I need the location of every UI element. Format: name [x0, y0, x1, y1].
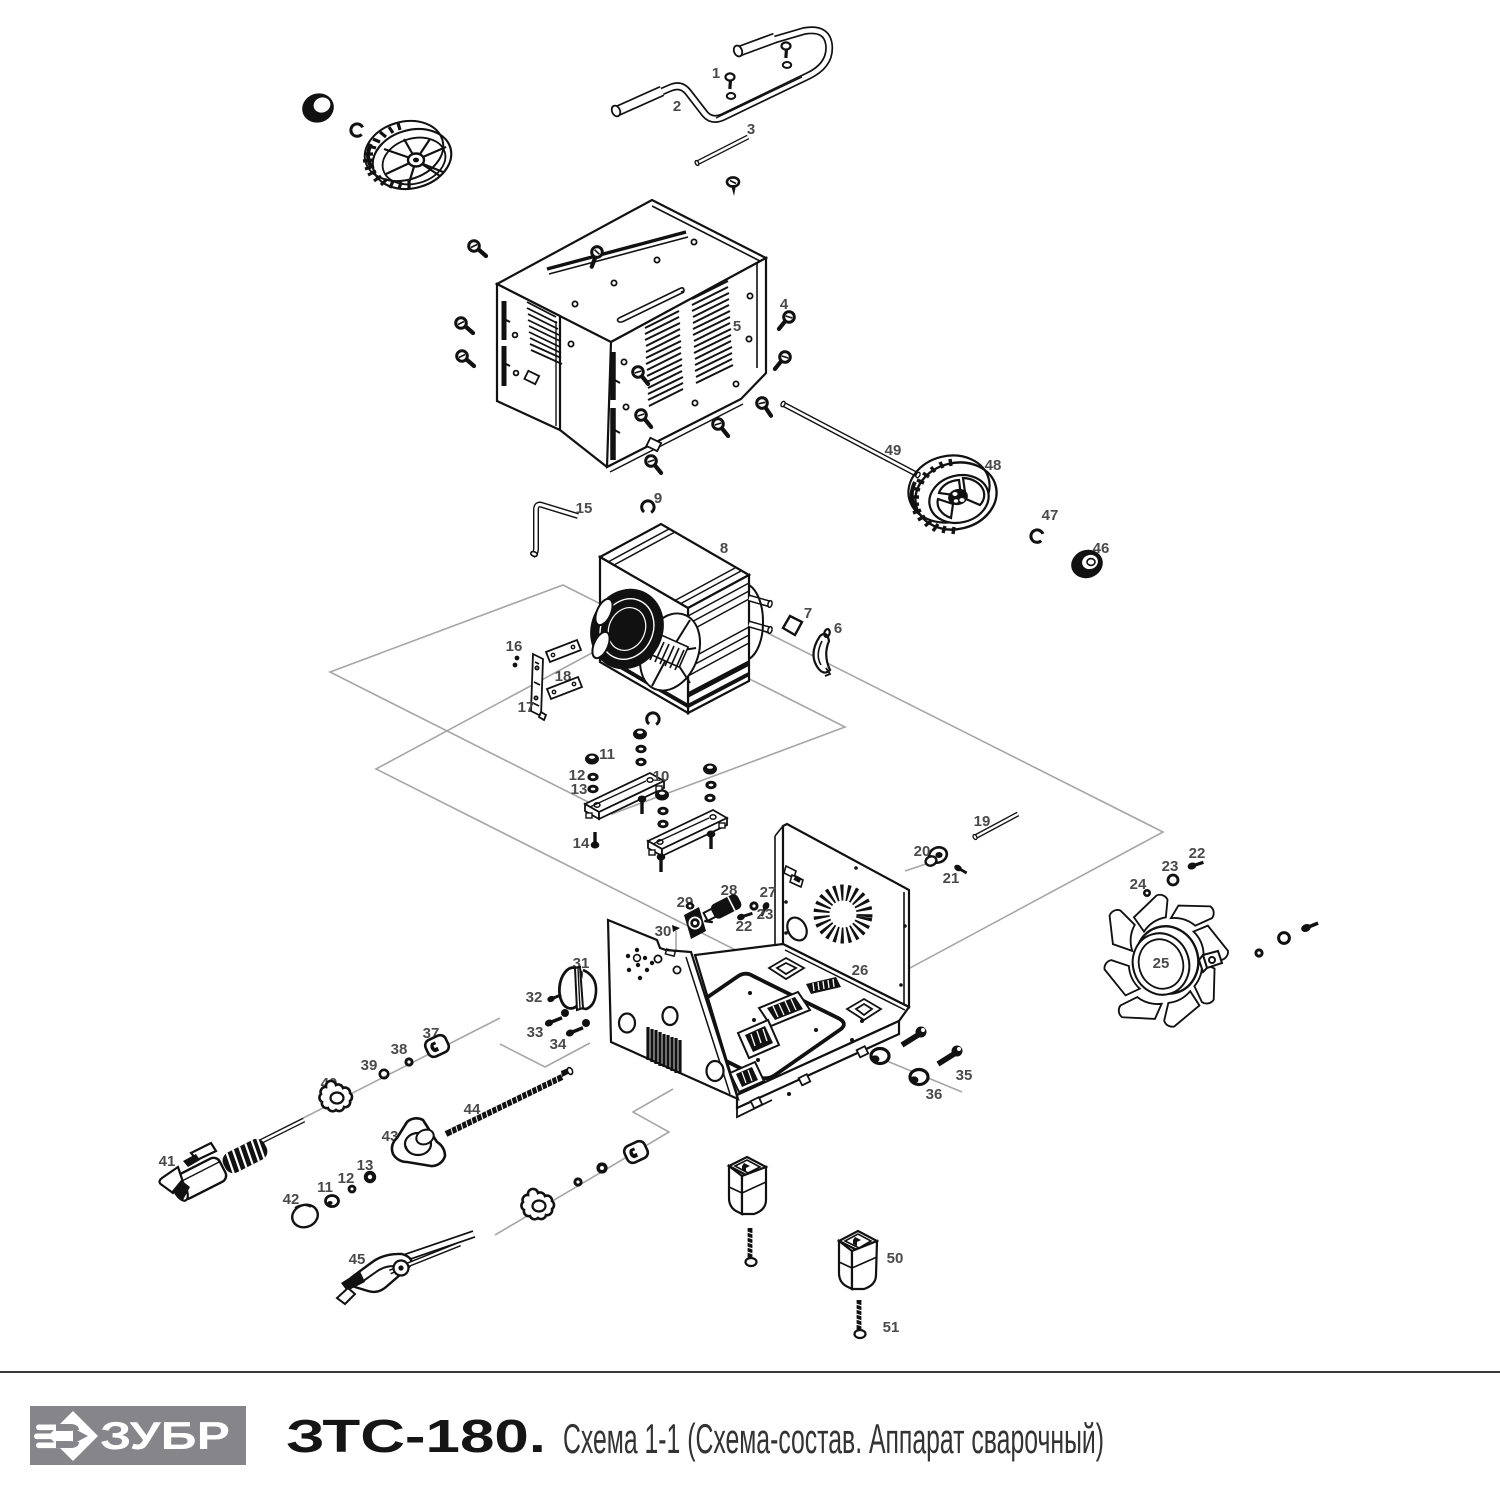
svg-text:45: 45	[349, 1251, 366, 1268]
svg-text:23: 23	[1162, 858, 1179, 875]
svg-text:30: 30	[655, 923, 672, 940]
svg-text:38: 38	[391, 1041, 408, 1058]
svg-text:Схема 1-1 (Схема-состав. Аппар: Схема 1-1 (Схема-состав. Аппарат сварочн…	[563, 1415, 1104, 1462]
svg-text:19: 19	[974, 813, 991, 830]
svg-text:13: 13	[571, 781, 588, 798]
svg-text:47: 47	[1042, 507, 1059, 524]
svg-text:11: 11	[599, 746, 615, 763]
svg-text:26: 26	[852, 962, 869, 979]
svg-text:2: 2	[673, 98, 681, 115]
svg-text:17: 17	[518, 699, 535, 716]
svg-text:46: 46	[1093, 540, 1110, 557]
svg-text:32: 32	[526, 989, 543, 1006]
svg-text:1: 1	[712, 65, 720, 82]
svg-text:20: 20	[914, 843, 931, 860]
svg-text:14: 14	[573, 835, 590, 852]
svg-text:ЗТС-180.: ЗТС-180.	[286, 1410, 546, 1462]
svg-text:3: 3	[747, 121, 755, 138]
svg-text:36: 36	[926, 1086, 943, 1103]
svg-text:27: 27	[760, 884, 777, 901]
svg-text:16: 16	[506, 638, 523, 655]
svg-text:21: 21	[943, 870, 960, 887]
svg-text:5: 5	[733, 318, 741, 335]
svg-text:23: 23	[757, 906, 774, 923]
svg-text:9: 9	[654, 490, 662, 507]
svg-text:22: 22	[1189, 845, 1206, 862]
svg-text:48: 48	[985, 457, 1002, 474]
svg-text:51: 51	[883, 1319, 900, 1336]
svg-text:12: 12	[338, 1170, 355, 1187]
svg-text:34: 34	[550, 1036, 567, 1053]
svg-text:41: 41	[159, 1153, 176, 1170]
svg-text:22: 22	[736, 918, 753, 935]
svg-text:44: 44	[464, 1101, 481, 1118]
svg-text:15: 15	[576, 500, 593, 517]
svg-text:49: 49	[885, 442, 902, 459]
svg-text:39: 39	[361, 1057, 378, 1074]
svg-text:10: 10	[653, 768, 670, 785]
svg-text:ЗУБР: ЗУБР	[100, 1415, 230, 1458]
svg-text:7: 7	[804, 605, 812, 622]
svg-text:50: 50	[887, 1250, 904, 1267]
svg-text:33: 33	[527, 1024, 544, 1041]
svg-text:11: 11	[317, 1179, 333, 1196]
svg-text:42: 42	[283, 1191, 300, 1208]
svg-text:25: 25	[1153, 955, 1170, 972]
svg-text:4: 4	[780, 296, 789, 313]
svg-text:6: 6	[834, 620, 842, 637]
svg-text:35: 35	[956, 1067, 973, 1084]
svg-text:8: 8	[720, 540, 728, 557]
